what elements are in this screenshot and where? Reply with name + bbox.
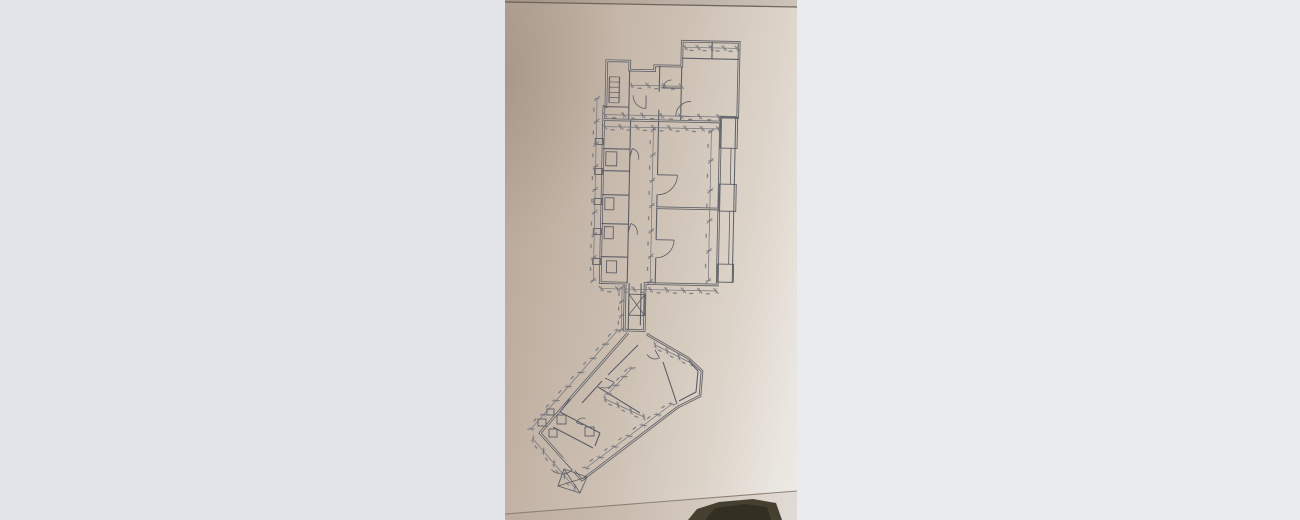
wall-line [601,257,628,258]
dimension-figure-smudge [611,129,615,130]
floor-plan-svg [505,0,797,520]
dimension-figure-smudge [592,153,593,157]
dimension-figure-smudge [640,292,644,293]
dimension-figure-smudge [616,377,620,381]
dimension-figure-smudge [643,130,647,131]
door-swing-arc [551,470,572,474]
dimension-figure-smudge [729,51,733,52]
dimension-figure-smudge [648,191,649,195]
dimension-figure-smudge [595,347,599,351]
wall-line [604,107,629,108]
dimension-line [655,345,691,363]
dimension-figure-smudge [624,368,628,372]
dimension-figure-smudge [618,292,619,296]
fixture-rect [557,415,566,424]
dimension-figure-smudge [591,199,592,203]
dimension-figure-smudge [604,448,608,451]
dimension-figure-smudge [558,390,562,394]
door-swing-arc [676,101,691,116]
wall-line [602,195,629,196]
dimension-figure-smudge [647,416,651,419]
dimension-figure-smudge [658,349,662,352]
dimension-figure-smudge [689,293,693,294]
letterbox-left [0,0,505,520]
upper-wing [589,39,740,335]
dimension-line [708,131,711,281]
letterbox-right [797,0,1300,520]
dimension-figure-smudge [618,321,619,325]
dimension-figure-smudge [545,457,549,461]
dimension-line [605,399,644,417]
door-swing-arc [601,382,614,388]
dimension-figure-smudge [593,131,594,135]
wall-line [553,427,593,448]
wall-line [659,66,660,92]
dimension-tick [582,467,589,468]
dimension-tick [611,446,618,447]
door-swing-arc [632,149,639,160]
dimension-figure-smudge [607,291,611,292]
dimension-figure-smudge [570,376,574,380]
dimension-tick [625,435,632,436]
dimension-tick [564,472,565,479]
door-leaf [562,459,572,470]
door-swing-arc [656,240,674,258]
dimension-figure-smudge [624,291,628,292]
wall-line [595,433,600,446]
screenshot-stage [0,0,1300,520]
dimension-figure-smudge [706,204,707,208]
dimension-tick [666,348,668,355]
wall-line [601,224,628,225]
dimension-tick [575,484,576,491]
dimension-figure-smudge [705,264,706,268]
dimension-figure-smudge [583,361,587,365]
dimension-figure-smudge [692,131,696,132]
dimension-figure-smudge [612,117,616,118]
dimension-figure-smudge [673,292,677,293]
edge-line [730,148,731,184]
dimension-figure-smudge [654,88,658,89]
door-swing-arc [631,224,638,235]
door-swing-arc [633,95,646,108]
dimension-figure-smudge [661,405,665,408]
lower-wing [527,328,702,493]
wall-line [657,121,658,175]
dimension-tick [640,425,647,426]
wall-line [627,120,630,283]
dimension-figure-smudge [659,130,663,131]
edge-line [732,117,735,282]
dimension-figure-smudge [632,427,636,430]
dimension-tick [543,448,544,455]
dimension-tick [554,460,555,467]
wall-line [629,70,630,121]
wall-line [663,362,677,404]
dimension-figure-smudge [656,292,660,293]
dimension-figure-smudge [546,404,550,408]
dimension-figure-smudge [589,459,593,462]
dimension-figure-smudge [631,118,635,119]
dimension-line [531,330,618,429]
floor-plan-photo [505,0,797,520]
dimension-tick [668,403,675,404]
fixture-rect [717,264,733,282]
wall-line [655,258,656,284]
dimension-figure-smudge [707,174,708,178]
dimension-figure-smudge [682,361,686,364]
dimension-figure-smudge [688,119,692,120]
dimension-figure-smudge [608,403,612,406]
dimension-figure-smudge [671,88,675,89]
dimension-figure-smudge [647,242,648,246]
door-leaf [605,378,614,382]
dimension-figure-smudge [591,221,592,225]
dimension-figure-smudge [592,176,593,180]
dimension-figure-smudge [618,437,622,440]
dimension-line [631,85,681,86]
dimension-figure-smudge [707,119,711,120]
dimension-figure-smudge [649,166,650,170]
wall-line [609,77,610,103]
fixture-rect [606,261,616,273]
dimension-figure-smudge [670,355,674,358]
dimension-figure-smudge [590,244,591,248]
door-leaf [655,350,660,358]
dimension-figure-smudge [618,306,619,310]
wall-line [679,361,698,401]
dimension-figure-smudge [676,130,680,131]
dimension-figure-smudge [716,50,720,51]
dimension-tick [597,457,604,458]
dimension-figure-smudge [669,118,673,119]
dimension-figure-smudge [608,333,612,337]
dimension-tick [654,342,656,349]
dimension-figure-smudge [590,267,591,271]
wall-line [560,399,570,412]
fixture-rect [585,427,594,436]
wall-line [582,381,602,403]
dimension-figure-smudge [533,418,537,422]
dimension-tick [654,414,661,415]
dimension-figure-smudge [621,409,625,412]
fixture-rect [549,429,557,437]
dimension-figure-smudge [706,293,710,294]
edge-line [729,211,730,264]
dimension-figure-smudge [707,144,708,148]
dimension-figure-smudge [706,234,707,238]
wall-line [603,171,630,172]
dimension-figure-smudge [648,216,649,220]
wall-line [619,77,620,103]
door-swing-arc [657,175,677,195]
dimension-figure-smudge [647,267,648,271]
dimension-figure-smudge [534,445,538,449]
wall-line [656,195,657,240]
fixture-rect [606,152,617,166]
fixture-rect [605,198,614,210]
dimension-figure-smudge [634,415,638,418]
wall-line [682,58,739,59]
dimension-figure-smudge [649,140,650,144]
dimension-figure-smudge [627,129,631,130]
dimension-figure-smudge [638,88,642,89]
fixture-rect [604,227,613,239]
dimension-line [621,287,622,330]
dimension-figure-smudge [593,108,594,112]
wall-line [603,149,630,150]
dimension-tick [533,435,534,442]
dimension-figure-smudge [703,50,707,51]
dimension-figure-smudge [690,50,694,51]
dimension-figure-smudge [650,118,654,119]
stair-symbol-diagonal [564,469,580,493]
